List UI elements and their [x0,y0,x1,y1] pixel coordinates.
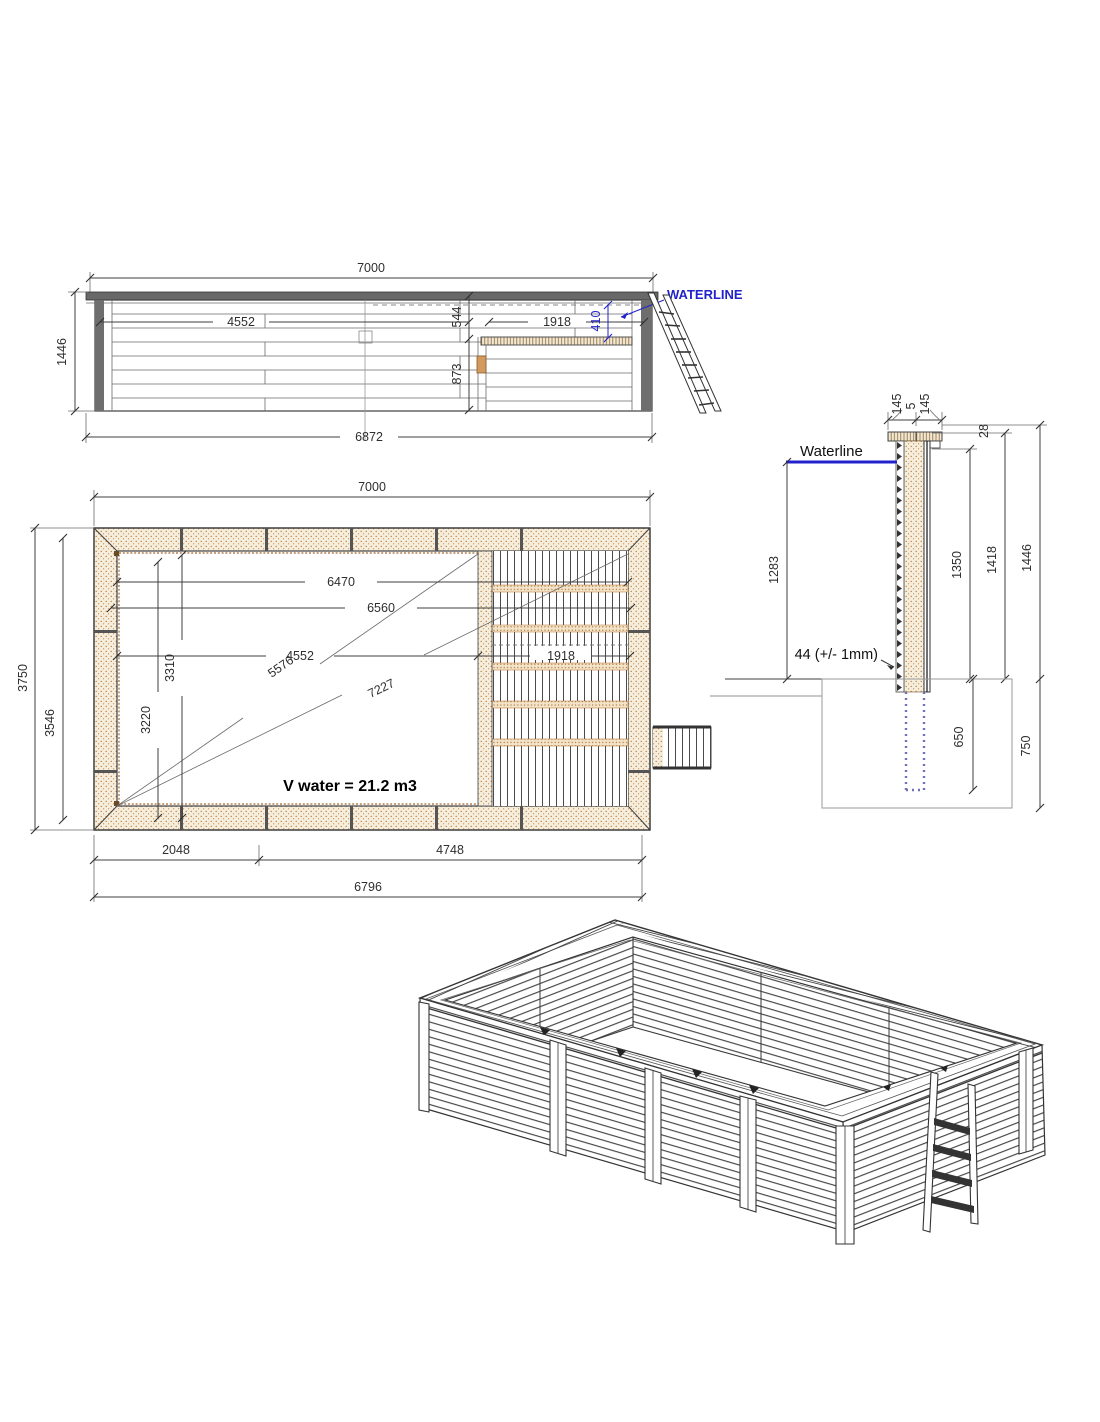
pool-drawing-svg: 7000 [0,0,1100,1422]
dim-label: 544 [450,307,464,328]
dim-label: 1350 [950,551,964,579]
pool-top-cap [86,292,658,300]
section-dim-650: 650 [952,675,977,794]
dim-label: 1918 [547,649,575,663]
dim-label: 6470 [327,575,355,589]
dim-label: 750 [1019,736,1033,757]
waterline-label: WATERLINE [667,287,743,302]
elevation-dim-1446: 1446 [55,288,95,415]
right-end-post [641,300,652,411]
dim-label: 1446 [55,338,69,366]
section-view: 145 5 145 Waterline 1283 [710,394,1047,812]
elevation-ladder [648,293,721,413]
plan-ladder [653,727,711,768]
left-end-post [95,300,104,411]
dim-label: 1918 [543,315,571,329]
section-plank-note: 44 (+/- 1mm) [795,647,894,670]
dim-label: 3546 [43,709,57,737]
waterline-label: Waterline [800,443,863,460]
dim-label: 3750 [16,664,30,692]
buried-post-dotted [906,692,924,790]
dim-label: 145 [918,394,932,415]
plan-bench [478,551,628,806]
dim-label: 6872 [355,430,383,444]
plan-dim-3750: 3750 [16,524,94,834]
dim-label: 6796 [354,880,382,894]
elevation-view: 7000 [55,261,743,444]
dim-label: 873 [450,364,464,385]
section-wall [896,441,930,692]
dim-label: 7000 [358,480,386,494]
elevation-dim-7000: 7000 [86,261,657,296]
dim-label: 1446 [1020,544,1034,572]
dim-label: 6560 [367,601,395,615]
section-waterline: Waterline [786,443,897,462]
dim-label: 145 [890,394,904,415]
section-ground [710,679,1012,808]
dim-label: 1283 [767,556,781,584]
dim-label: 1418 [985,546,999,574]
plan-dim-3546: 3546 [43,534,67,824]
dim-label: 4552 [227,315,255,329]
dim-label: 7000 [357,261,385,275]
dim-label: 4552 [286,649,314,663]
plan-dim-7000: 7000 [90,480,654,526]
water-volume-label: V water = 21.2 m3 [283,778,417,795]
note-label: 44 (+/- 1mm) [795,647,878,663]
section-cap-dims: 145 5 145 [884,394,946,430]
dim-label: 28 [977,424,991,438]
technical-drawing-page: 7000 [0,0,1100,1422]
section-right-dims: 1350 1418 28 1446 [932,421,1047,683]
elevation-dim-6872: 6872 [82,413,656,444]
dim-label: 2048 [162,843,190,857]
plan-bottom-dims: 2048 4748 6796 [90,835,646,902]
liner-lock [929,441,940,448]
dim-label: 3310 [163,654,177,682]
section-dim-1283: 1283 [767,458,791,683]
isometric-view [419,920,1045,1244]
plan-view: 7000 [16,480,711,902]
section-dim-750: 750 [1019,679,1044,812]
dim-label: 4748 [436,843,464,857]
dim-label: 410 [589,311,603,332]
dim-label: 5 [904,402,918,409]
dim-label: 650 [952,727,966,748]
dim-label: 3220 [139,706,153,734]
